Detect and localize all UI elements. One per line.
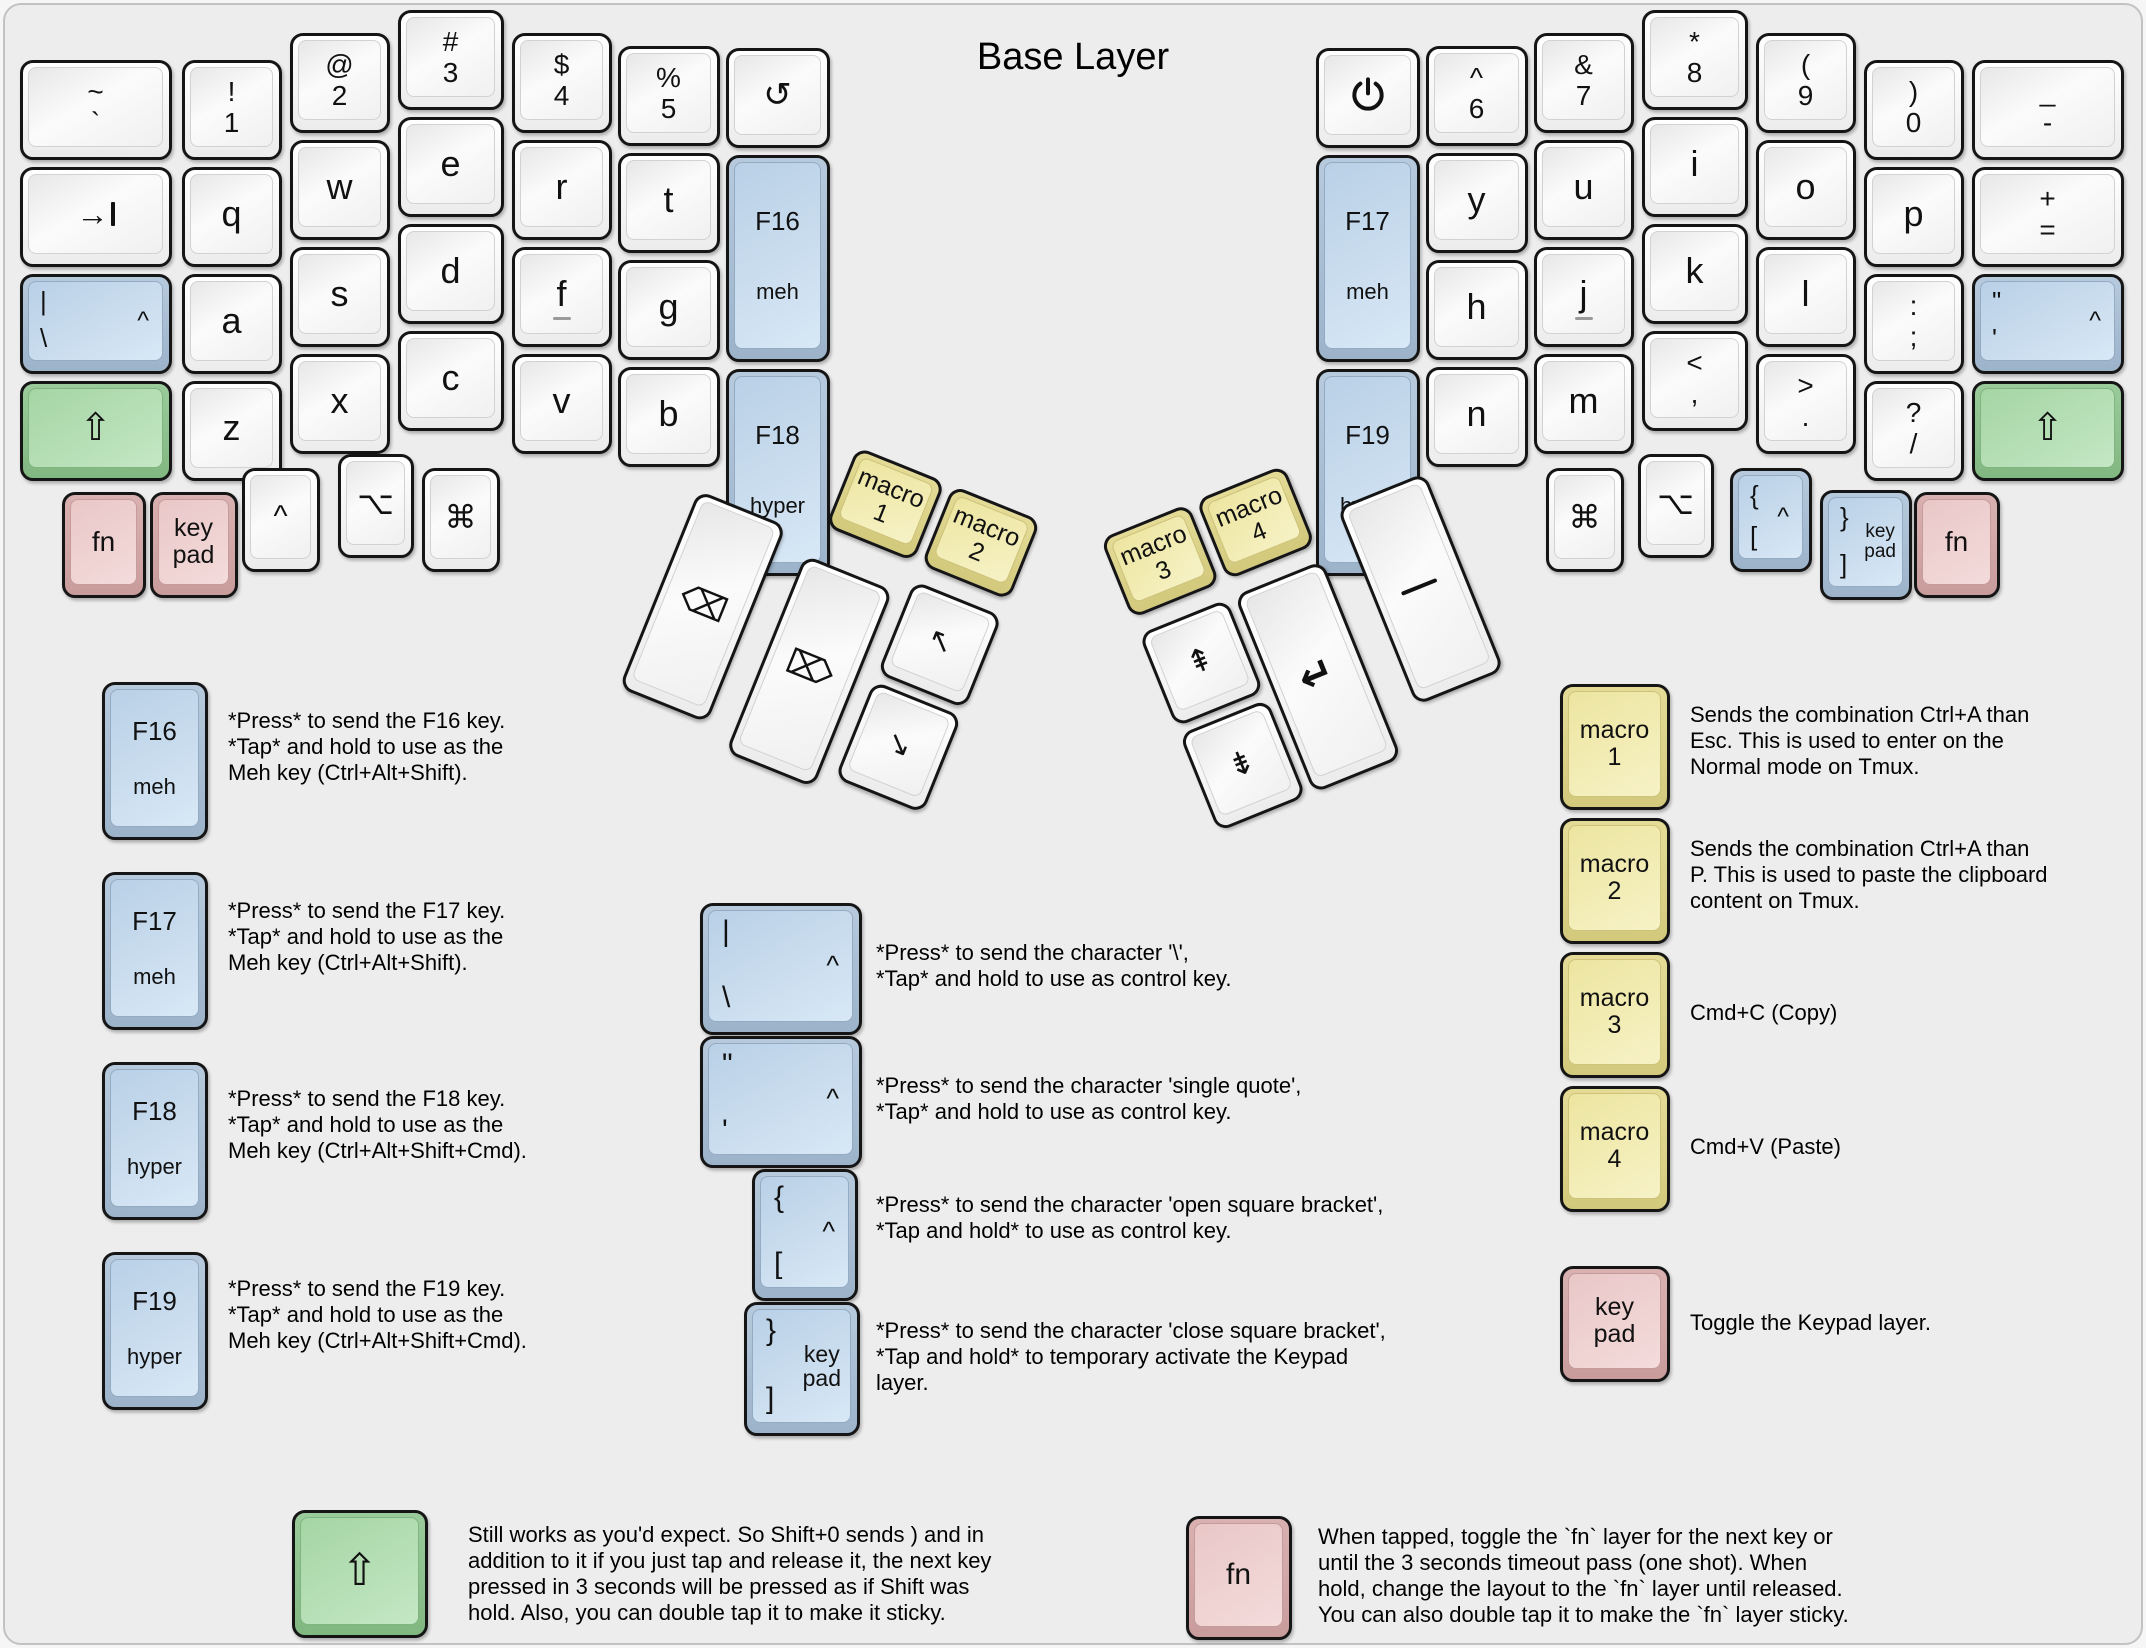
keycap: ⌘ [1554,475,1615,559]
key-p: p [1864,167,1964,267]
key-label-line: pad [1594,1321,1636,1348]
fkey-labels: F17meh [111,880,198,1016]
shift-symbol: * [1689,26,1700,57]
fkey-label: F18 [755,420,800,451]
key-label: ⇞ [1181,641,1218,681]
key-x: x [290,354,390,454]
key-label-lines: macro1 [844,463,929,539]
keycap: ↘ [847,690,951,798]
shift-symbol: > [1797,370,1813,401]
legend-text-f17: *Press* to send the F17 key. *Tap* and h… [228,898,505,976]
keycap: macro4 [1568,1093,1661,1199]
key-leg-macro4: macro4 [1560,1086,1670,1212]
key-keypad-left: keypad [150,492,238,598]
keycap: x [298,361,381,441]
key-leg-f18: F18hyper [102,1062,208,1220]
key-u: u [1534,140,1634,240]
key-option-left: ⌥ [338,454,414,558]
key-label: a [221,303,241,339]
key-1: !1 [182,60,282,160]
key-f16-meh: F16meh [726,155,830,362]
keycap: h [1434,267,1519,347]
key-label: p [1903,196,1923,232]
fkey-label: F19 [132,1286,177,1317]
key-label-lines: macro4 [1212,482,1297,558]
main-symbol: 1 [224,107,240,138]
shift-symbol: ( [1801,49,1810,80]
key-4: $4 [512,33,612,133]
keycap: l [1764,254,1847,334]
keycap: i [1650,124,1739,204]
keycap: ⌥ [346,461,405,545]
key-label: ⇟ [1223,743,1260,783]
key-label: q [221,196,241,232]
keycap: ↺ [734,55,821,135]
stacked-labels: >. [1797,370,1813,432]
keycap: macro2 [1568,825,1661,931]
key-d: d [398,224,504,324]
main-symbol: ] [766,1382,774,1416]
key-label: n [1466,396,1486,432]
main-symbol: , [1691,378,1699,409]
stacked-labels: (9 [1798,49,1814,111]
key-fn-right: fn [1914,492,2000,598]
keycap: ⇞ [1149,609,1251,712]
keycap: )0 [1872,67,1955,147]
key-right-shift: ⇧ [1972,381,2124,481]
keycap: |\^ [708,910,853,1022]
stacked-labels: ~` [87,76,103,138]
key-0: )0 [1864,60,1964,160]
key-label-line: macro [1580,717,1649,744]
main-symbol: 9 [1798,80,1814,111]
key-leg-macro1: macro1 [1560,684,1670,810]
key-label: g [658,289,678,325]
key-leg-f16: F16meh [102,682,208,840]
keycap: w [298,147,381,227]
fkey-labels: F16meh [111,690,198,826]
key-8: *8 [1642,10,1748,110]
key-label: z [223,410,241,446]
combo-labels: }]keypad [1829,498,1902,586]
keycap: "'^ [708,1043,853,1155]
key-command-right: ⌘ [1546,468,1624,572]
keypad-label-line: pad [1864,542,1896,562]
key-label-lines: keypad [1594,1294,1636,1348]
keycap [1324,55,1411,135]
key-tab: → [20,167,172,267]
keyboard-layout-diagram: Base Layer ~`→|\^⇧!1qaz@2wsx#3edc$4rfv%5… [0,0,2146,1648]
key-dash: _- [1972,60,2124,160]
key-leg-f17: F17meh [102,872,208,1030]
main-symbol: 4 [554,80,570,111]
key-leg-macro3: macro3 [1560,952,1670,1078]
keycap: (9 [1764,40,1847,120]
fkey-label: F16 [132,716,177,747]
key-fn-left: fn [62,492,146,598]
legend-text-quote: *Press* to send the character 'single qu… [876,1073,1301,1125]
key-label: ⌥ [1657,487,1694,519]
power-icon [1348,75,1388,115]
main-symbol: ; [1910,321,1918,352]
key-label-lines: macro2 [1580,851,1649,905]
key-r: r [512,140,612,240]
key-z: z [182,381,282,481]
key-t: t [618,153,720,253]
key-label: fn [1226,1560,1251,1590]
key-label: ⌦ [781,644,838,694]
key-label-line: 2 [1580,878,1649,905]
key-w: w [290,140,390,240]
key-label: i [1691,146,1699,182]
key-control-backslash: |\^ [20,274,172,374]
key-leg-macro2: macro2 [1560,818,1670,944]
key-leg-quote: "'^ [700,1036,862,1168]
keycap: }]keypad [752,1309,851,1423]
key-label-lines: keypad [173,515,215,569]
homing-bump [1575,317,1593,320]
key-label-lines: macro4 [1580,1119,1649,1173]
shift-symbol: ? [1906,397,1922,428]
keycap: @2 [298,40,381,120]
keycap: >. [1764,361,1847,441]
keycap: *8 [1650,17,1739,97]
key-k: k [1642,224,1748,324]
keycap: ↖ [889,590,991,693]
key-label-line: key [1594,1294,1636,1321]
key-power [1316,48,1420,148]
main-symbol: \ [722,981,730,1015]
main-symbol: ] [1840,549,1847,580]
keycap: ~` [28,67,163,147]
key-label-lines: macro2 [939,502,1024,578]
fkey-labels: F18hyper [111,1070,198,1206]
space-bar-icon [1401,577,1438,595]
main-symbol: ` [91,107,100,138]
key-leg-f19: F19hyper [102,1252,208,1410]
shift-symbol: } [766,1314,776,1348]
legend-text-keypad: Toggle the Keypad layer. [1690,1310,1931,1336]
key-leg-cbracket: }]keypad [744,1302,860,1436]
key-2: @2 [290,33,390,133]
legend-text-f18: *Press* to send the F18 key. *Tap* and h… [228,1086,527,1164]
keycap: F17meh [1324,162,1411,349]
main-symbol: 2 [332,80,348,111]
keycap: ⇧ [300,1517,419,1625]
key-label-lines: macro3 [1116,520,1201,596]
stacked-labels: ^6 [1469,62,1485,124]
key-7: &7 [1534,33,1634,133]
stacked-labels: %5 [656,62,681,124]
legend-text-f19: *Press* to send the F19 key. *Tap* and h… [228,1276,527,1354]
shift-symbol: # [443,26,459,57]
fkey-sub-label: meh [756,279,799,305]
key-label: x [331,383,349,419]
key-period: >. [1756,354,1856,454]
main-symbol: 3 [443,57,459,88]
fkey-sub-label: hyper [127,1344,182,1370]
main-symbol: . [1802,401,1810,432]
key-leg-fn: fn [1186,1516,1292,1640]
key-option-right: ⌥ [1638,454,1714,558]
key-label: ⇧ [80,409,112,447]
fkey-label: F17 [132,906,177,937]
control-caret: ^ [1777,503,1789,532]
key-f17-meh: F17meh [1316,155,1420,362]
keycap: fn [1194,1523,1283,1627]
key-control-left: ^ [242,468,320,572]
key-label: b [658,396,678,432]
shift-symbol: _ [2040,76,2056,107]
key-label: c [442,360,460,396]
keycap: &7 [1542,40,1625,120]
keycap: r [520,147,603,227]
combo-labels: {[^ [761,1177,848,1287]
keycap: u [1542,147,1625,227]
legend-text-macro1: Sends the combination Ctrl+A than Esc. T… [1690,702,2029,780]
keycap: b [626,374,711,454]
stacked-labels: !1 [224,76,240,138]
fkey-sub-label: meh [1346,279,1389,305]
key-label: h [1466,289,1486,325]
combo-labels: |\^ [29,282,162,360]
shift-symbol: + [2039,183,2055,214]
key-label-line: macro [1580,851,1649,878]
key-command-left: ⌘ [422,468,500,572]
key-n: n [1426,367,1528,467]
keycap: |\^ [28,281,163,361]
keycap: o [1764,147,1847,227]
keycap: g [626,267,711,347]
key-undo: ↺ [726,48,830,148]
key-label: l [1802,276,1810,312]
key-equal: += [1972,167,2124,267]
key-label-line: pad [173,542,215,569]
main-symbol: 5 [661,93,677,124]
keycap: %5 [626,53,711,133]
control-caret: ^ [822,1217,835,1248]
main-symbol: 7 [1576,80,1592,111]
keycap: #3 [406,17,495,97]
control-caret: ^ [826,1084,839,1115]
key-f: f [512,247,612,347]
keycap: {[^ [760,1176,849,1288]
fkey-label: F17 [1345,206,1390,237]
keycap: k [1650,231,1739,311]
legend-text-open-bracket: *Press* to send the character 'open squa… [876,1192,1383,1244]
keycap: F18hyper [110,1069,199,1207]
key-leg-shift: ⇧ [292,1510,428,1638]
key-label: ↖ [923,623,958,660]
main-symbol: ' [722,1114,728,1148]
keycap: ⌥ [1646,461,1705,545]
keycap: d [406,231,495,311]
key-label-lines: macro3 [1580,985,1649,1039]
main-symbol: = [2039,214,2055,245]
keycap: c [406,338,495,418]
keycap: += [1980,174,2115,254]
shift-symbol: | [40,286,47,317]
keypad-label: keypad [1864,522,1896,562]
key-9: (9 [1756,33,1856,133]
shift-symbol: & [1574,49,1593,80]
key-label-line: 4 [1580,1146,1649,1173]
keycap: v [520,361,603,441]
key-keypad-close-bracket: }]keypad [1820,490,1912,600]
keycap: fn [70,499,137,585]
stacked-labels: *8 [1687,26,1703,88]
key-label: ⌥ [357,487,394,519]
key-label-line: key [173,515,215,542]
fkey-label: F18 [132,1096,177,1127]
key-label-line: macro [1580,985,1649,1012]
keycap: <, [1650,338,1739,418]
key-label: f [556,276,566,312]
stacked-labels: ?/ [1906,397,1922,459]
key-control-open-bracket: {[^ [1730,468,1812,572]
keycap: _- [1980,67,2115,147]
key-label: r [556,169,568,205]
main-symbol: - [2043,107,2052,138]
keycap: m [1542,361,1625,441]
shift-symbol: ! [228,76,236,107]
fkey-label: F16 [755,206,800,237]
stacked-labels: $4 [554,49,570,111]
keycap: q [190,174,273,254]
legend-text-macro4: Cmd+V (Paste) [1690,1134,1841,1160]
key-label: ↘ [882,726,917,763]
key-label: j [1580,276,1588,312]
legend-text-fn: When tapped, toggle the `fn` layer for t… [1318,1524,1849,1628]
key-5: %5 [618,46,720,146]
keycap: p [1872,174,1955,254]
keycap: n [1434,374,1519,454]
key-y: y [1426,153,1528,253]
key-label-line: macro [1580,1119,1649,1146]
key-label: o [1795,169,1815,205]
fkey-label: F19 [1345,420,1390,451]
stacked-labels: &7 [1574,49,1593,111]
key-label: ⌫ [675,579,732,629]
combo-labels: "'^ [709,1044,852,1154]
keypad-label-line: key [1864,522,1896,542]
key-label: ⇧ [2032,409,2064,447]
legend-text-f16: *Press* to send the F16 key. *Tap* and h… [228,708,505,786]
key-c: c [398,331,504,431]
tab-arrow-icon: → [77,196,115,233]
keycap: macro3 [1568,959,1661,1065]
key-tilde: ~` [20,60,172,160]
main-symbol: 8 [1687,57,1703,88]
legend-text-close-bracket: *Press* to send the character 'close squ… [876,1318,1386,1396]
shift-symbol: " [1992,286,2001,317]
key-label: ⌘ [445,501,477,533]
stacked-labels: )0 [1906,76,1922,138]
key-label: e [440,146,460,182]
keycap: s [298,254,381,334]
shift-symbol: ) [1909,76,1918,107]
key-label: ⌘ [1569,501,1601,533]
main-symbol: 0 [1906,107,1922,138]
key-left-shift: ⇧ [20,381,172,481]
key-a: a [182,274,282,374]
keycap: F16meh [110,689,199,827]
keycap: :; [1872,281,1955,361]
key-i: i [1642,117,1748,217]
legend-text-macro2: Sends the combination Ctrl+A than P. Thi… [1690,836,2048,914]
main-symbol: ' [1992,323,1997,354]
keycap: j [1542,254,1625,334]
key-g: g [618,260,720,360]
keycap: ⇧ [1980,388,2115,468]
main-symbol: [ [1750,521,1757,552]
main-symbol: \ [40,323,47,354]
keycap: ^6 [1434,53,1519,133]
keycap: ⇧ [28,388,163,468]
key-label: ↵ [1292,648,1340,700]
key-semicolon: :; [1864,274,1964,374]
key-b: b [618,367,720,467]
stacked-labels: <, [1686,347,1702,409]
shift-symbol: ^ [1470,62,1483,93]
key-label: m [1569,383,1599,419]
keycap: {[^ [1738,475,1803,559]
keycap: $4 [520,40,603,120]
key-o: o [1756,140,1856,240]
key-leg-pipe: |\^ [700,903,862,1035]
key-label-lines: macro1 [1580,717,1649,771]
stacked-labels: #3 [443,26,459,88]
key-label: fn [1945,528,1968,556]
key-m: m [1534,354,1634,454]
combo-labels: {[^ [1739,476,1802,558]
key-e: e [398,117,504,217]
fkey-labels: F17meh [1325,163,1410,348]
keycap: z [190,388,273,468]
key-control-quote: "'^ [1972,274,2124,374]
key-3: #3 [398,10,504,110]
key-j: j [1534,247,1634,347]
main-symbol: / [1910,428,1918,459]
control-caret: ^ [826,951,839,982]
shift-symbol: % [656,62,681,93]
key-l: l [1756,247,1856,347]
keycap: keypad [1568,1273,1661,1369]
key-h: h [1426,260,1528,360]
keycap: }]keypad [1828,497,1903,587]
shift-symbol: @ [325,49,353,80]
shift-symbol: " [722,1048,733,1082]
legend-text-macro3: Cmd+C (Copy) [1690,1000,1837,1026]
key-label: u [1573,169,1593,205]
fkey-labels: F16meh [735,163,820,348]
combo-labels: |\^ [709,911,852,1021]
key-leg-keypad: keypad [1560,1266,1670,1382]
combo-labels: }]keypad [753,1310,850,1422]
key-label: fn [92,528,115,556]
main-symbol: [ [774,1247,782,1281]
homing-bump [553,317,571,320]
key-v: v [512,354,612,454]
key-label: s [331,276,349,312]
tab-bar-icon [111,202,115,226]
keycap: fn [1922,499,1991,585]
stacked-labels: += [2039,183,2055,245]
keycap: "'^ [1980,281,2115,361]
key-leg-obracket: {[^ [752,1169,858,1301]
key-s: s [290,247,390,347]
fkey-sub-label: hyper [127,1154,182,1180]
